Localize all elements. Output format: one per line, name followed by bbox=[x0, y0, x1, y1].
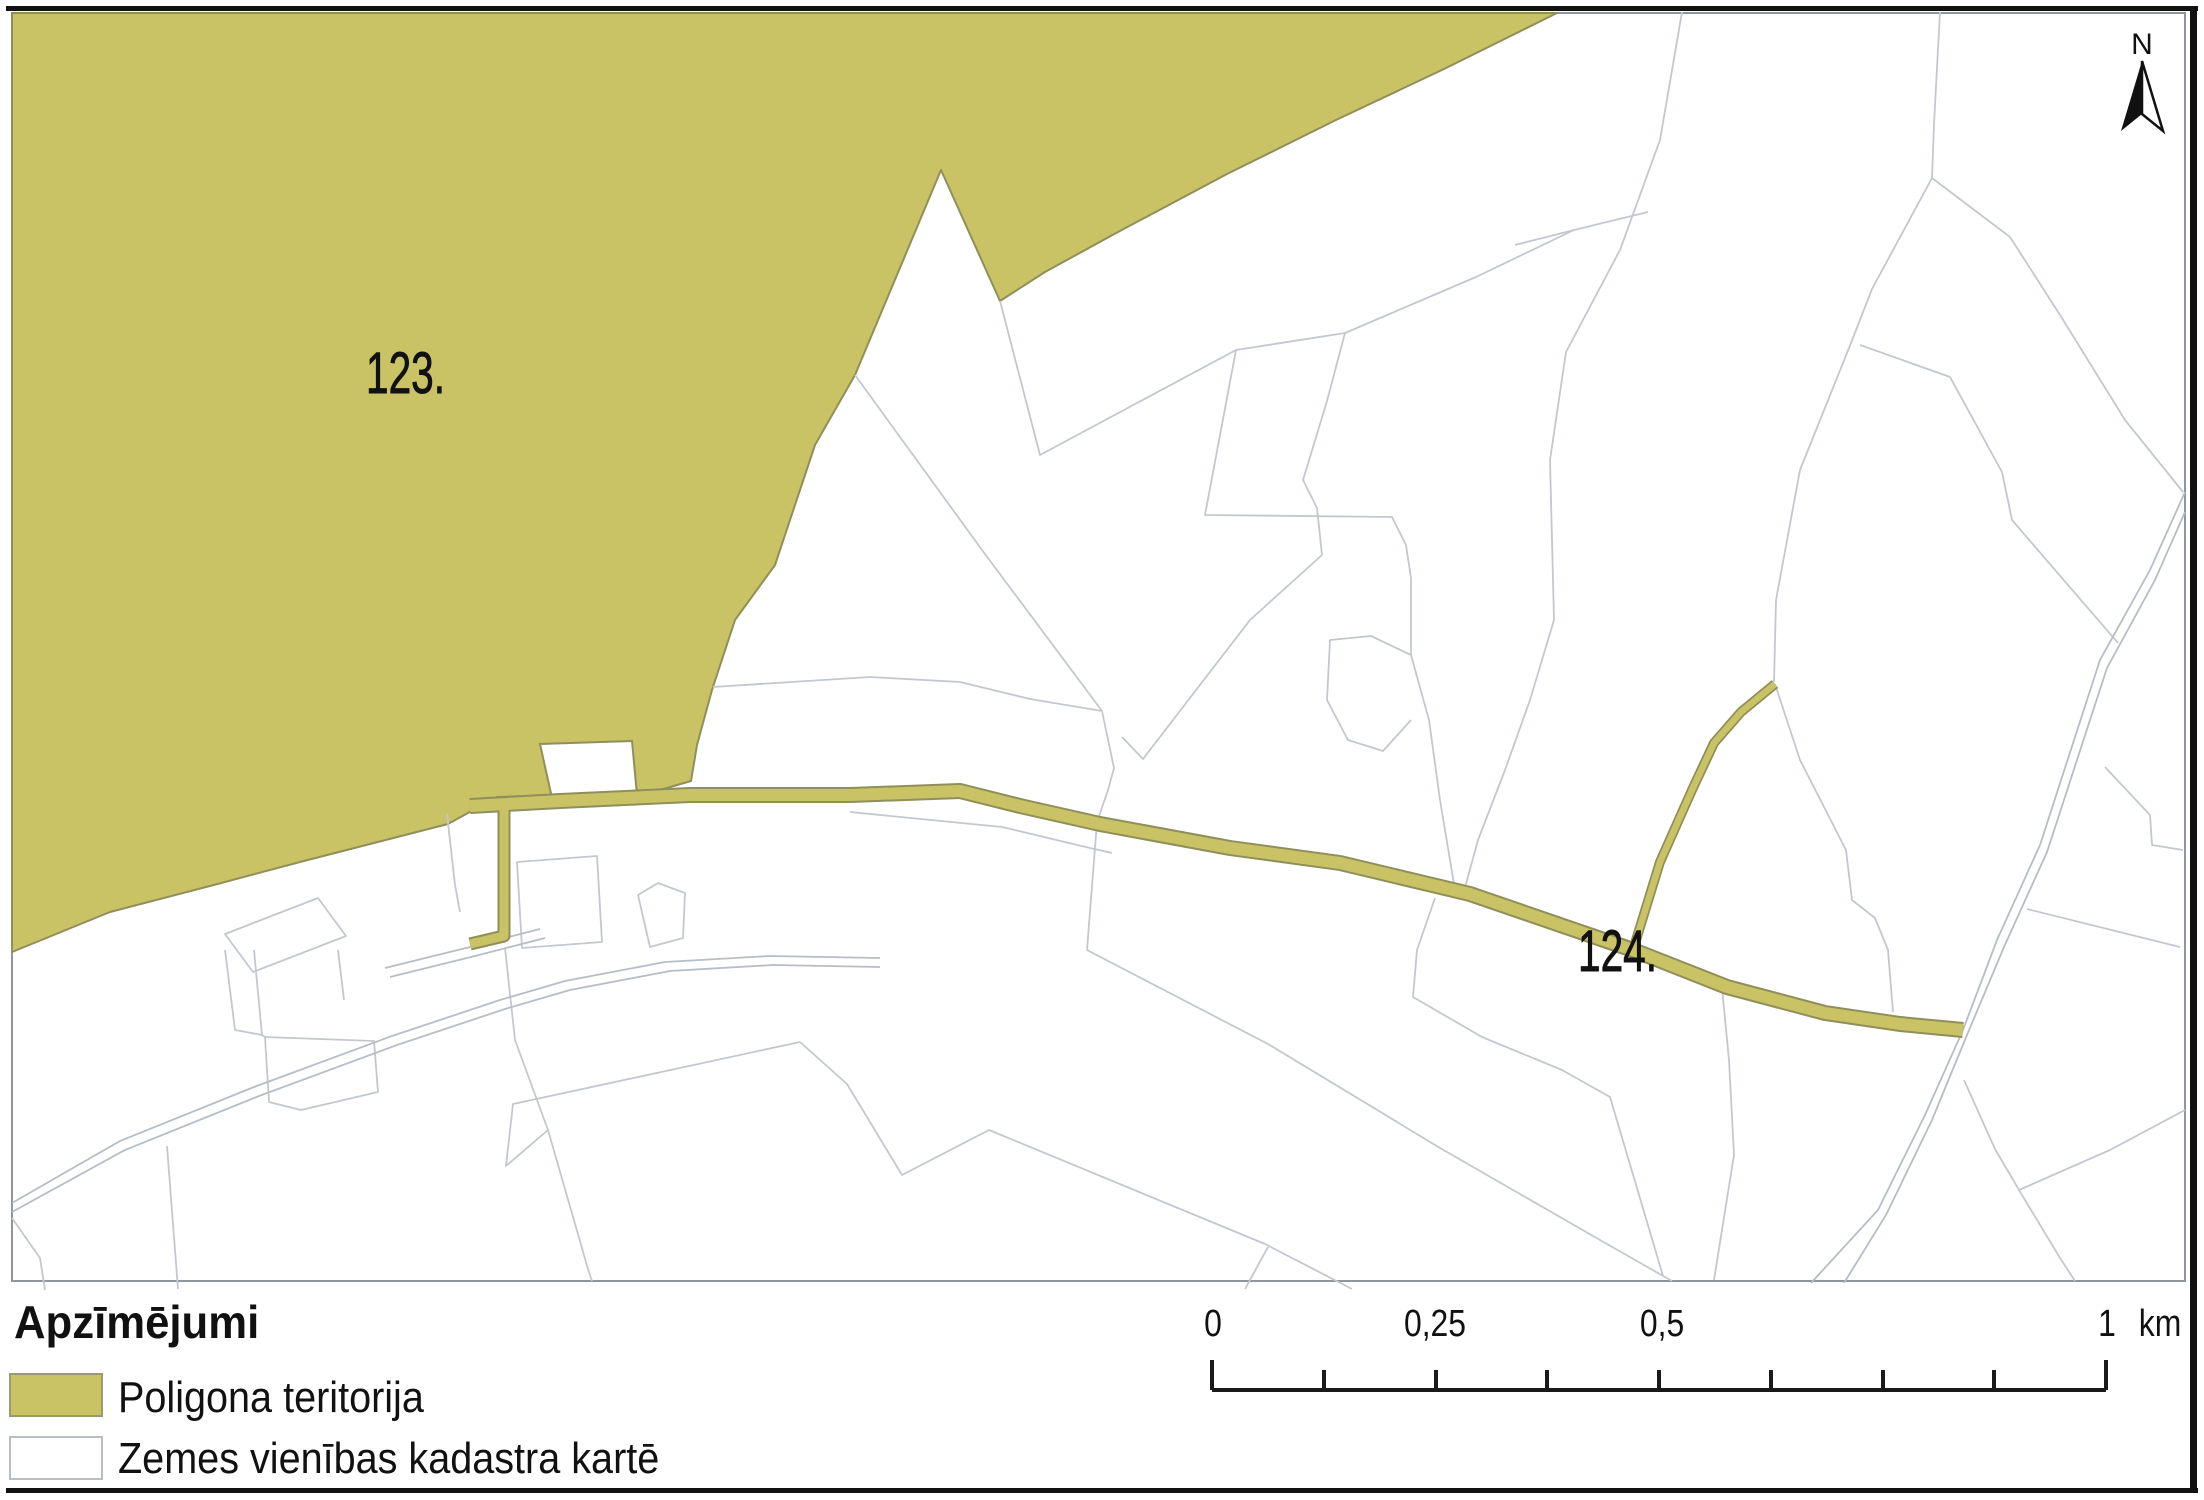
svg-text:0,25: 0,25 bbox=[1404, 1302, 1466, 1344]
svg-text:Zemes vienības kadastra kartē: Zemes vienības kadastra kartē bbox=[118, 1433, 659, 1482]
svg-text:km: km bbox=[2139, 1302, 2182, 1344]
svg-text:0: 0 bbox=[1204, 1302, 1222, 1344]
svg-text:Apzīmējumi: Apzīmējumi bbox=[14, 1296, 259, 1348]
svg-text:0,5: 0,5 bbox=[1640, 1302, 1684, 1344]
svg-text:Poligona teritorija: Poligona teritorija bbox=[118, 1372, 425, 1421]
svg-text:N: N bbox=[2131, 28, 2153, 61]
svg-text:1: 1 bbox=[2098, 1302, 2116, 1344]
svg-text:124.: 124. bbox=[1578, 919, 1657, 984]
svg-text:123.: 123. bbox=[366, 341, 445, 406]
